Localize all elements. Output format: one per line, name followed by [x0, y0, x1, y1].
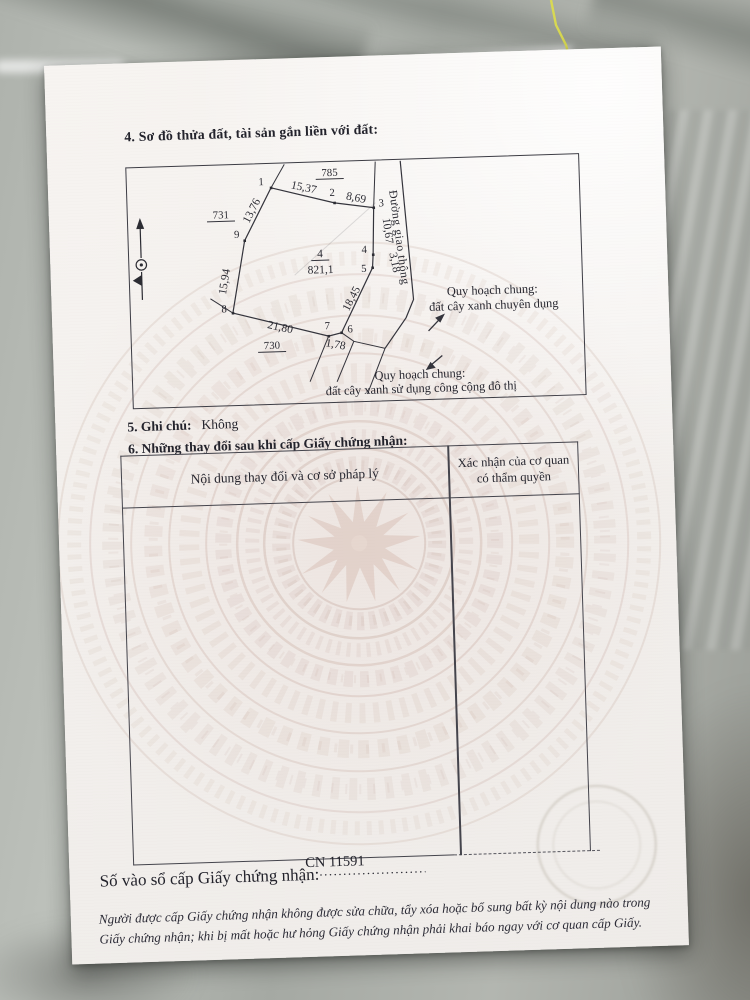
vertex-label: 6: [347, 323, 353, 335]
parcel-area: 821,1: [307, 264, 333, 277]
vertex-label: 8: [221, 303, 227, 315]
section5-label: 5. Ghi chú:: [127, 417, 192, 434]
edge-length-1-2: 15,37: [290, 179, 318, 196]
document-paper: 4. Sơ đồ thửa đất, tài sản gắn liền với …: [44, 47, 689, 965]
table-col1-header: Nội dung thay đổi và cơ sở pháp lý: [120, 445, 449, 507]
vertex-label: 2: [329, 187, 335, 199]
adjacent-parcel-785: 785: [321, 167, 338, 180]
edge-length-5-6: 18,45: [341, 284, 364, 313]
table-col2-header: Xác nhận của cơ quan có thẩm quyền: [448, 441, 580, 497]
road-west-edge: [372, 162, 376, 208]
registry-label: Số vào sổ cấp Giấy chứng nhận:: [99, 865, 319, 891]
north-arrow-icon: [131, 218, 148, 300]
edge-length-7-8: 21,80: [266, 319, 294, 336]
adjacent-parcel-731: 731: [213, 209, 230, 222]
land-plot-diagram: 1 2 3 4 5 6 7 8 9 15,37 8,69 10,67 3,18 …: [125, 153, 586, 409]
vertex-label: 3: [378, 197, 384, 209]
footer-note: Người được cấp Giấy chứng nhận không đượ…: [99, 891, 680, 948]
section5-note: 5. Ghi chú:Không: [127, 416, 238, 435]
edge-length-2-3: 8,69: [345, 190, 367, 206]
planning-note-1-line1: Quy hoạch chung:: [447, 282, 538, 299]
parcel-number: 4: [317, 248, 323, 260]
section5-value: Không: [201, 416, 238, 432]
registry-number-value: CN 11591: [305, 853, 365, 872]
photo-scene: 4. Sơ đồ thửa đất, tài sản gắn liền với …: [0, 0, 750, 1000]
adjacent-parcel-730: 730: [264, 340, 281, 353]
edge-length-6-7: 1,78: [325, 337, 347, 352]
planning-note-1-arrow: [428, 313, 446, 331]
table-col2-header-line2: có thẩm quyền: [477, 468, 552, 487]
vertex-label: 4: [361, 244, 367, 256]
vertex-label: 7: [324, 320, 330, 332]
vertex-label: 1: [258, 176, 264, 188]
section4-title: 4. Sơ đồ thửa đất, tài sản gắn liền với …: [124, 121, 378, 145]
vertex-label: 9: [234, 229, 240, 241]
planning-note-1-line2: đất cây xanh chuyên dụng: [429, 296, 559, 314]
planning-note-2-line2: đất cây xanh sử dụng công cộng đô thị: [326, 378, 518, 398]
changes-table: Nội dung thay đổi và cơ sở pháp lý Xác n…: [120, 441, 591, 865]
vertex-label: 5: [361, 263, 367, 275]
edge-length-8-9: 15,94: [217, 268, 233, 296]
table-col2-header-line1: Xác nhận của cơ quan: [457, 451, 569, 471]
